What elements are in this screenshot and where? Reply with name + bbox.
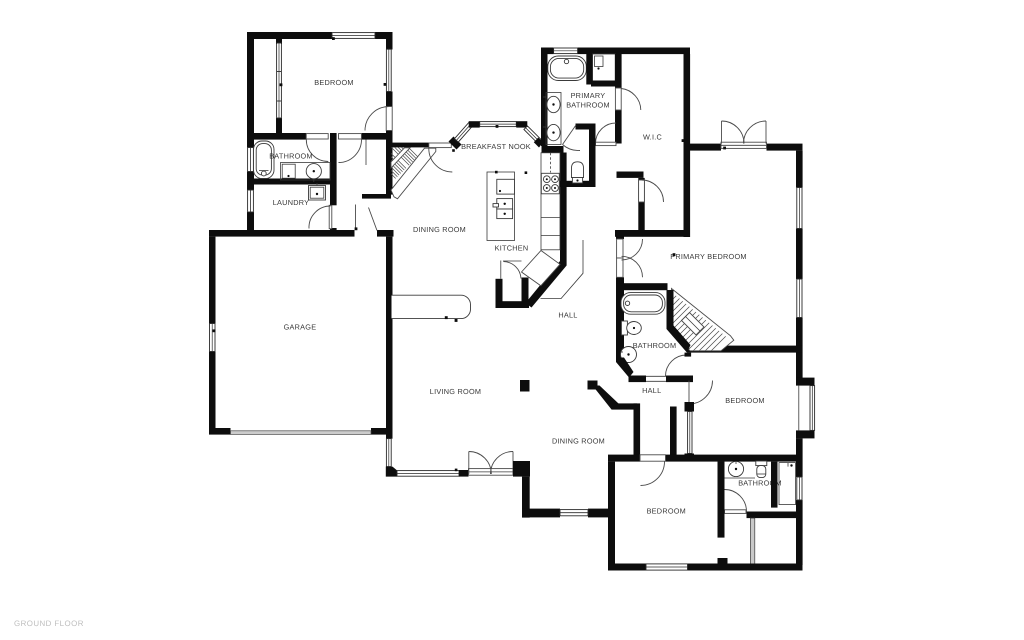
svg-text:PRIMARY BEDROOM: PRIMARY BEDROOM [670, 252, 746, 261]
svg-text:BEDROOM: BEDROOM [647, 506, 686, 515]
svg-text:DINING ROOM: DINING ROOM [552, 436, 605, 445]
svg-text:GROUND FLOOR: GROUND FLOOR [14, 619, 84, 628]
svg-text:HALL: HALL [642, 386, 661, 395]
svg-text:BREAKFAST NOOK: BREAKFAST NOOK [461, 142, 531, 151]
svg-text:GARAGE: GARAGE [284, 322, 317, 331]
svg-text:DINING ROOM: DINING ROOM [413, 225, 466, 234]
svg-text:LIVING ROOM: LIVING ROOM [430, 387, 481, 396]
svg-text:W.I.C: W.I.C [643, 132, 662, 141]
svg-text:BATHROOM: BATHROOM [566, 100, 610, 109]
svg-text:PRIMARY: PRIMARY [571, 91, 606, 100]
svg-text:LAUNDRY: LAUNDRY [273, 198, 310, 207]
svg-text:BATHROOM: BATHROOM [633, 341, 677, 350]
svg-text:BATHROOM: BATHROOM [269, 151, 313, 160]
svg-text:BEDROOM: BEDROOM [314, 78, 353, 87]
svg-text:KITCHEN: KITCHEN [495, 243, 529, 252]
svg-text:BEDROOM: BEDROOM [725, 396, 764, 405]
svg-text:HALL: HALL [558, 311, 577, 320]
